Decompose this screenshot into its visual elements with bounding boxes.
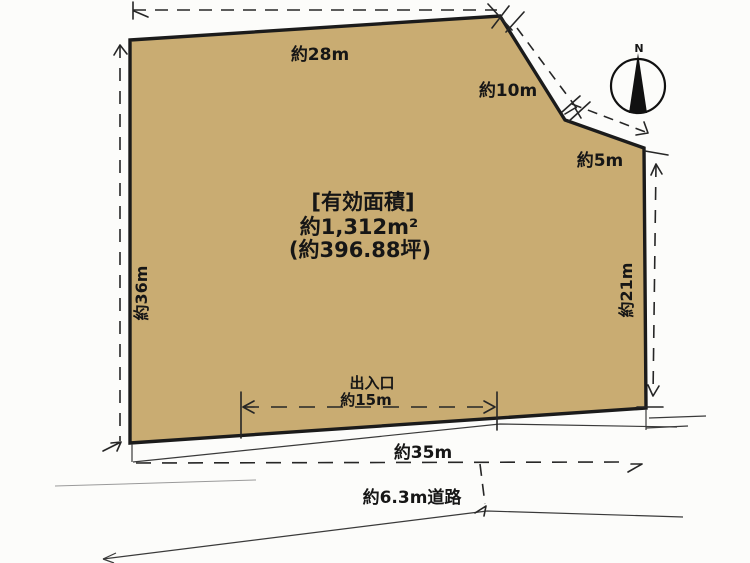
dimension-label-top: 約28m bbox=[291, 44, 349, 65]
road-width-arrow bbox=[475, 506, 486, 516]
dimension-label-bottom: 約35m bbox=[394, 442, 452, 463]
area-tsubo: (約396.88坪) bbox=[289, 238, 431, 262]
dimension-label-right: 約21m bbox=[617, 263, 636, 318]
road-lower-edge-line bbox=[103, 511, 683, 559]
north-needle bbox=[629, 53, 647, 113]
dimension-label-left: 約36m bbox=[132, 266, 151, 321]
dimension-line-right bbox=[653, 164, 656, 396]
entrance-title-label: 出入口 bbox=[349, 374, 394, 392]
land-plot-page: 約28m 約10m 約5m 約36m 約21m 約35m 出入口 約15m 約6… bbox=[0, 0, 750, 563]
north-label: N bbox=[634, 42, 643, 55]
right-curb-line-2 bbox=[649, 416, 706, 418]
dimension-label-diagonal: 約10m bbox=[479, 80, 537, 101]
compass-icon: N bbox=[611, 42, 665, 113]
area-title: [有効面積] bbox=[311, 190, 414, 214]
road-faint-left-line bbox=[55, 480, 256, 486]
area-square-meters: 約1,312m² bbox=[300, 215, 419, 239]
dimension-line-bottom bbox=[136, 462, 622, 463]
bottom-dim-right-arrow bbox=[628, 464, 642, 472]
road-label: 約6.3m道路 bbox=[363, 487, 463, 508]
entrance-width-label: 約15m bbox=[340, 391, 392, 409]
left-dim-bottom-tick bbox=[103, 442, 121, 451]
dimension-label-upper-right: 約5m bbox=[577, 150, 624, 171]
dimension-line-road-width bbox=[480, 464, 485, 504]
plot-diagram: 約28m 約10m 約5m 約36m 約21m 約35m 出入口 約15m 約6… bbox=[0, 0, 750, 563]
